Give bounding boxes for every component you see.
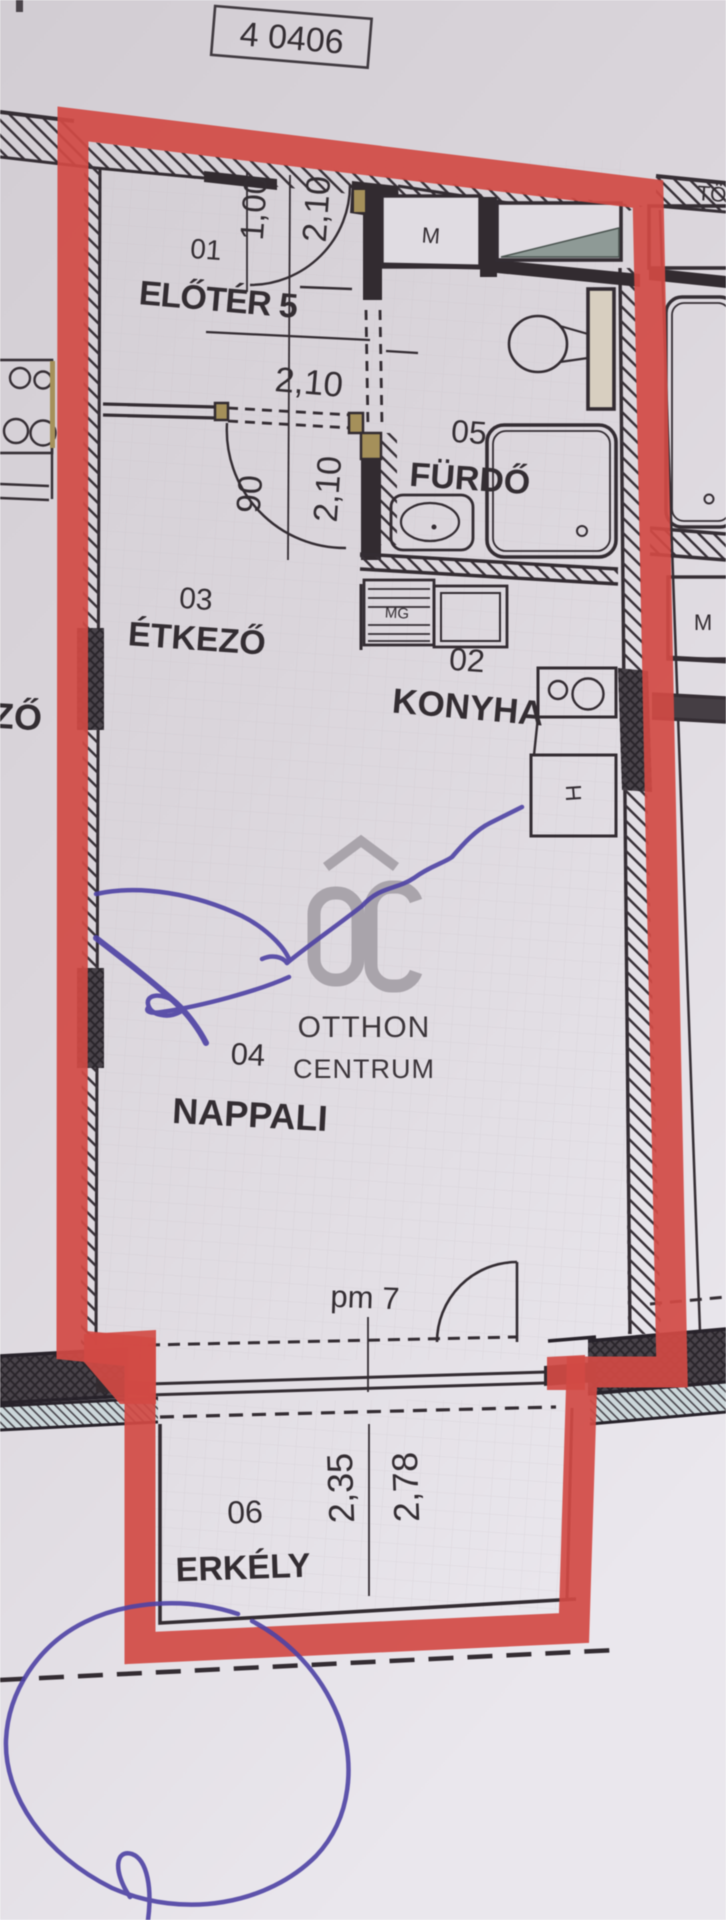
svg-text:M: M — [694, 610, 712, 635]
svg-text:01: 01 — [189, 233, 222, 266]
svg-text:TÖ: TÖ — [697, 182, 726, 207]
svg-text:M: M — [421, 222, 441, 248]
svg-text:ERKÉLY: ERKÉLY — [175, 1547, 311, 1590]
svg-text:OTTHON: OTTHON — [298, 1011, 431, 1044]
svg-text:MG: MG — [384, 604, 409, 622]
svg-text:2,35: 2,35 — [319, 1452, 362, 1523]
svg-text:05: 05 — [450, 413, 488, 451]
svg-text:06: 06 — [227, 1493, 264, 1530]
svg-text:CENTRUM: CENTRUM — [293, 1054, 435, 1084]
svg-text:NAPPALI: NAPPALI — [171, 1090, 328, 1139]
svg-text:02: 02 — [448, 641, 486, 679]
svg-text:04: 04 — [230, 1036, 266, 1073]
svg-text:03: 03 — [178, 582, 214, 617]
svg-text:ZŐ: ZŐ — [0, 694, 43, 739]
svg-text:90: 90 — [230, 474, 271, 514]
svg-text:2,78: 2,78 — [384, 1451, 427, 1522]
svg-text:2,10: 2,10 — [307, 455, 350, 524]
svg-text:2,10: 2,10 — [273, 360, 344, 405]
svg-text:2,10: 2,10 — [296, 175, 339, 244]
svg-text:pm 7: pm 7 — [330, 1279, 400, 1316]
svg-text:1,00: 1,00 — [233, 175, 274, 242]
